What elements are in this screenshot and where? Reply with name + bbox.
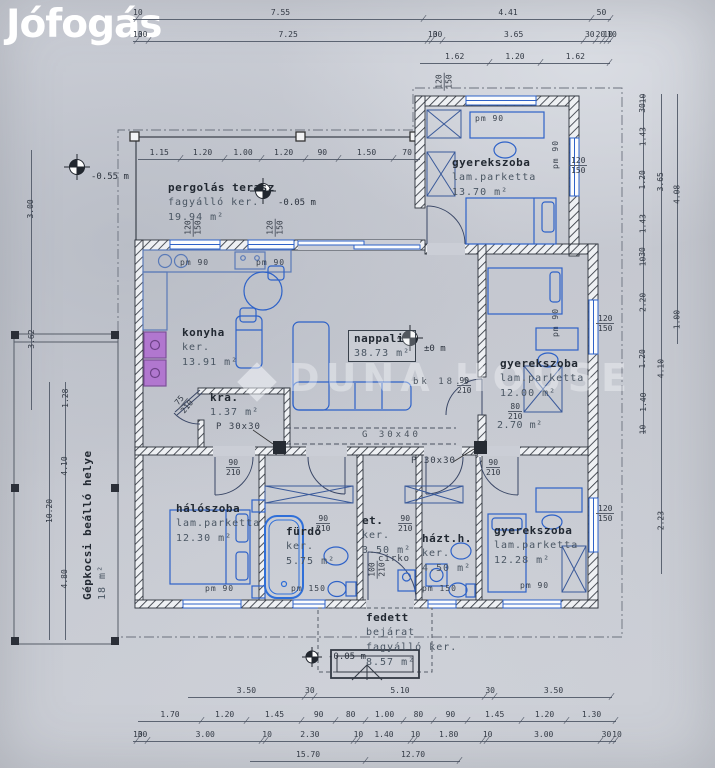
- dimension-label: 4.10: [562, 361, 715, 375]
- dim-chain-right-b: 3.654.102.23: [654, 94, 668, 574]
- dim-chain-top-1: 107.554.4150: [133, 8, 611, 22]
- door-height: 210: [508, 412, 522, 421]
- dimension-label: 90: [306, 148, 339, 162]
- dimension-label: 1.20: [261, 148, 305, 162]
- room-label-line: pergolás terasz: [168, 180, 275, 195]
- door-height: 210: [378, 562, 387, 576]
- window-width: 120: [569, 156, 587, 166]
- dimension-label: 5.10: [315, 686, 485, 700]
- dimension-label: 1.62: [541, 52, 610, 66]
- dimension-label: 50: [592, 8, 611, 22]
- dimension-label: 10: [639, 255, 648, 269]
- dimension-label: 30: [137, 30, 149, 44]
- pillar-post: [474, 441, 487, 454]
- dimension-label: 1.20: [202, 710, 247, 724]
- dimension-label: 3.00: [487, 730, 601, 744]
- dimension-label: 30: [485, 686, 495, 700]
- dimension-label: 3.50: [188, 686, 305, 700]
- door-width: 90: [316, 514, 330, 524]
- parapet-label: pm 90: [205, 584, 234, 593]
- dim-chain-top-3: 1.621.201.62: [420, 52, 610, 66]
- window-height: 150: [194, 220, 203, 234]
- room-label-line: 12.30 m²: [176, 531, 260, 546]
- room-label-line: 12.28 m²: [494, 553, 578, 568]
- room-label-line: fagyálló ker.: [366, 640, 457, 655]
- dimension-label: 2.20: [607, 296, 680, 310]
- room-label-fedett-bejarat: fedettbejáratfagyálló ker.8.57 m²: [366, 610, 457, 670]
- door-size-label: 90210: [316, 514, 330, 533]
- dimension-label: 4.80: [4, 572, 126, 586]
- room-label-line: kra.: [210, 390, 259, 405]
- dimension-label: 1.20: [489, 52, 540, 66]
- beam-label-p1: P 30x30: [216, 422, 261, 432]
- window-height: 150: [571, 166, 585, 175]
- dimension-label: 80: [336, 710, 366, 724]
- dim-chain-bottom-4: 15.7012.70: [250, 750, 460, 764]
- room-label-line: 12.00 m²: [500, 386, 584, 401]
- room-label-line: 13.70 m²: [452, 185, 536, 200]
- beam-label-p2: P 30x30: [411, 456, 456, 466]
- room-label-line: gyerekszoba: [494, 523, 578, 538]
- door-size-label: 90210: [398, 514, 412, 533]
- dimension-label: 1.00: [225, 148, 262, 162]
- room-label-line: bejárat: [366, 625, 457, 640]
- dimension-label: 1.20: [522, 710, 567, 724]
- room-label-line: 5.75 m²: [286, 554, 335, 569]
- dimension-label: 10: [612, 730, 616, 744]
- parapet-label: pm 90: [520, 581, 549, 590]
- window-width: 120: [435, 72, 445, 90]
- door-size-label: 90210: [457, 376, 471, 395]
- dimension-label: 1.50: [339, 148, 394, 162]
- dim-chain-bottom-2: 1.701.201.4590801.0080901.451.201.30: [138, 710, 616, 724]
- dimension-label: 4.41: [424, 8, 592, 22]
- door-width: 100: [368, 560, 378, 578]
- dimension-label: 1.15: [138, 148, 180, 162]
- dimension-label: 30: [137, 730, 148, 744]
- parapet-label: pm 90: [180, 258, 209, 267]
- door-height: 210: [316, 524, 330, 533]
- dimension-label: 3.50: [495, 686, 612, 700]
- room-label-line: ker.: [182, 340, 238, 355]
- dimension-label: 20: [596, 30, 604, 44]
- dimension-label: 4.08: [577, 187, 715, 201]
- door-width: 80: [508, 402, 522, 412]
- room-label-konyha: konyhaker.13.91 m²: [182, 325, 238, 370]
- window-width: 120: [184, 218, 194, 236]
- room-label-line: gyerekszoba: [452, 155, 536, 170]
- window-height: 150: [598, 324, 612, 333]
- dimension-label: 3.00: [148, 730, 262, 744]
- room-label-line: nappali: [354, 331, 410, 346]
- window-height: 150: [276, 220, 285, 234]
- door-height: 210: [398, 524, 412, 533]
- door-width: 90: [226, 458, 240, 468]
- dimension-label: 3.62: [0, 332, 102, 346]
- dimension-label: 1.00: [366, 710, 404, 724]
- room-label-line: fedett: [366, 610, 457, 625]
- door-size-label: 80210: [508, 402, 522, 421]
- dimension-label: 30: [601, 730, 612, 744]
- dimension-label: 70: [394, 148, 420, 162]
- room-label-line: 8.57 m²: [366, 655, 457, 670]
- dimension-label: 1.45: [247, 710, 302, 724]
- dimension-label: 10.20: [0, 504, 178, 518]
- room-label-line: ker.: [286, 539, 335, 554]
- dimension-label: 1.45: [467, 710, 522, 724]
- dimension-label: 7.25: [148, 30, 427, 44]
- room-label-line: lam.parketta: [494, 538, 578, 553]
- dim-chain-terrace: 1.151.201.001.20901.5070: [138, 148, 420, 162]
- parapet-label: pm 90: [256, 258, 285, 267]
- door-width: 90: [457, 376, 471, 386]
- room-label-line: 13.91 m²: [182, 355, 238, 370]
- dimension-label: 1.20: [180, 148, 224, 162]
- floorplan-page: DUNA HOUSE Jófogás pergolás teraszfagyál…: [0, 0, 715, 768]
- dimension-label: 3.65: [443, 30, 584, 44]
- dimension-label: 1.40: [357, 730, 410, 744]
- dim-chain-left-a: 3.003.62: [24, 150, 38, 410]
- room-label-line: 1.37 m²: [210, 405, 259, 420]
- room-label-gyerekszoba-1: gyerekszobalam.parketta13.70 m²: [452, 155, 536, 200]
- window-height: 150: [445, 74, 454, 88]
- dimension-label: 90: [433, 710, 467, 724]
- room-label-line: ker.: [422, 546, 472, 561]
- room-label-haloszoba: hálószobalam.parketta12.30 m²: [176, 501, 260, 546]
- window-size-label: 120150: [184, 218, 203, 236]
- dim-chain-top-2: 10307.2510303.6530201010: [133, 30, 611, 44]
- dim-chain-bottom-1: 3.50305.10303.50: [188, 686, 612, 700]
- parapet-label: pm 90: [475, 114, 504, 123]
- dimension-label: 80: [403, 710, 433, 724]
- dimension-label: 3.00: [0, 202, 90, 216]
- dim-chain-right-a: 10301.431.201.4330102.201.201.4010: [636, 94, 650, 434]
- window-size-label: 120150: [569, 156, 587, 175]
- dimension-label: 1.00: [652, 312, 701, 326]
- dimension-label: 30: [638, 101, 648, 115]
- dimension-label: 1.28: [49, 391, 81, 405]
- dim-chain-left-b: 10.20: [42, 382, 56, 640]
- dim-chain-bottom-3: 10303.00102.30101.40101.80103.003010: [133, 730, 616, 744]
- room-label-kamra: kra.1.37 m²: [210, 390, 259, 420]
- dimension-label: 2.23: [607, 513, 714, 527]
- level-label: -0.05 m: [278, 198, 316, 208]
- room-label-gyerekszoba-3: gyerekszobalam.parketta12.28 m²: [494, 523, 578, 568]
- room-label-nappali: nappali38.73 m²: [348, 330, 416, 362]
- pillar-post: [273, 441, 286, 454]
- door-size-label: 90210: [486, 458, 500, 477]
- dimension-label: 30: [305, 686, 315, 700]
- dimension-label: 7.55: [137, 8, 424, 22]
- window-size-label: 120150: [266, 218, 285, 236]
- door-width: 90: [398, 514, 412, 524]
- dimension-label: 1.62: [420, 52, 489, 66]
- level-label: -0.55 m: [91, 172, 129, 182]
- door-width: 90: [486, 458, 500, 468]
- parapet-label: pm 90: [551, 308, 560, 337]
- dimension-label: 2.30: [266, 730, 353, 744]
- room-label-haztartasi: házt.h.ker.4.50 m²: [422, 531, 472, 576]
- window-width: 120: [596, 504, 614, 514]
- window-width: 120: [266, 218, 276, 236]
- door-size-label: 90210: [226, 458, 240, 477]
- door-height: 210: [486, 468, 500, 477]
- room-label-line: házt.h.: [422, 531, 472, 546]
- window-size-label: 120150: [435, 72, 454, 90]
- dim-chain-left-c: 1.284.104.80: [58, 382, 72, 640]
- dimension-label: 1.80: [414, 730, 482, 744]
- parapet-label: pm 150: [422, 584, 457, 593]
- beam-label-g: G 30x40: [362, 430, 421, 440]
- dimension-label: 1.70: [138, 710, 202, 724]
- level-label: ±0 m: [424, 344, 446, 354]
- room-label-line: 38.73 m²: [354, 346, 410, 361]
- door-size-label: 100210: [368, 560, 387, 578]
- dimension-label: 12.70: [366, 750, 460, 764]
- dimension-label: 90: [302, 710, 336, 724]
- dimension-label: 10: [607, 30, 611, 44]
- parapet-label: pm 90: [551, 140, 560, 169]
- door-height: 210: [226, 468, 240, 477]
- parapet-label: pm 150: [291, 584, 326, 593]
- dimension-label: 1.30: [567, 710, 616, 724]
- window-width: 120: [596, 314, 614, 324]
- dimension-label: 30: [584, 30, 596, 44]
- room-label-line: fagyálló ker.: [168, 195, 275, 210]
- room-label-line: 4.50 m²: [422, 561, 472, 576]
- dimension-label: 15.70: [250, 750, 366, 764]
- door-height: 210: [457, 386, 471, 395]
- dimension-label: 10: [639, 423, 648, 437]
- room-label-line: lam.parketta: [176, 516, 260, 531]
- window-size-label: 120150: [596, 314, 614, 333]
- room-label-line: konyha: [182, 325, 238, 340]
- room-label-line: hálószoba: [176, 501, 260, 516]
- level-label: -0.05 m: [328, 652, 366, 662]
- dimension-label: 30: [432, 30, 444, 44]
- dim-chain-right-c: 4.081.00: [670, 94, 684, 344]
- room-label-line: lam.parketta: [452, 170, 536, 185]
- dimension-label: 4.10: [13, 459, 117, 473]
